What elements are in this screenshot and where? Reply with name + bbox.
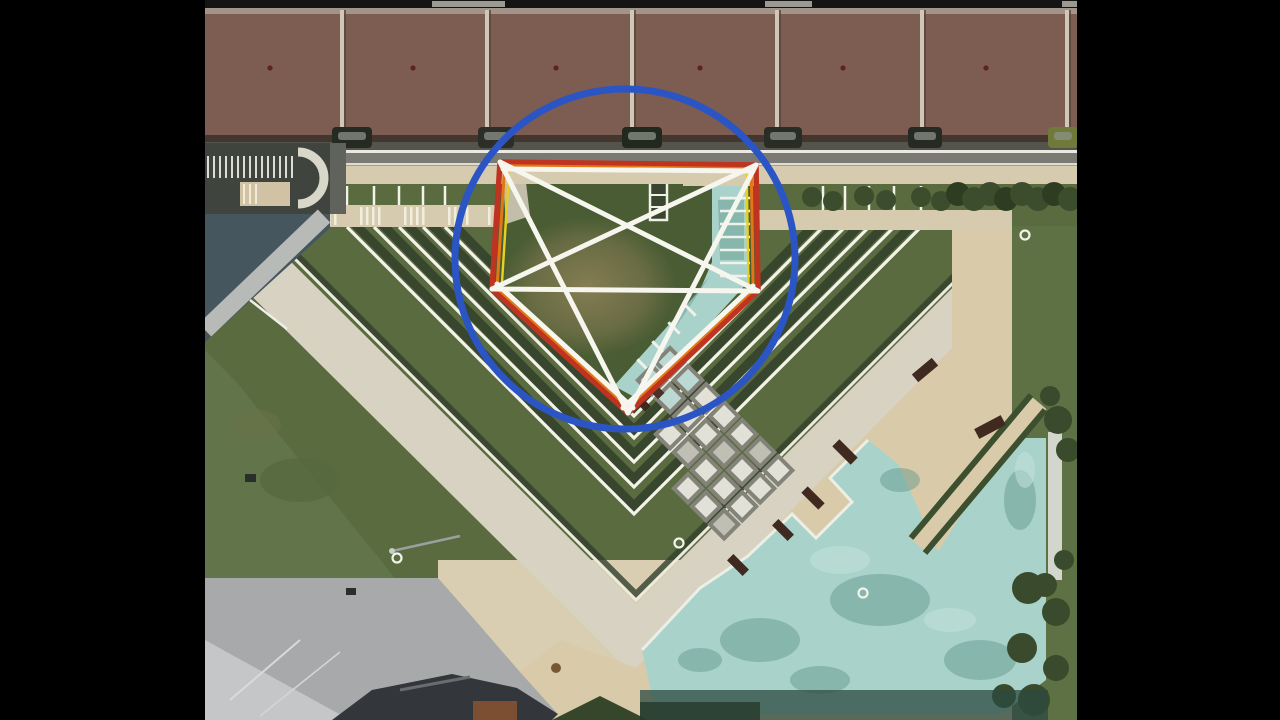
crosswalk-stripe	[416, 207, 419, 225]
car-roof	[1054, 132, 1072, 140]
light-pole-base	[389, 548, 395, 554]
crosswalk-stripe	[366, 207, 369, 225]
roof-divider-shadow	[489, 10, 491, 138]
hedge-clump	[854, 186, 874, 206]
water-texture	[924, 608, 976, 632]
water-texture	[720, 618, 800, 662]
water-texture	[678, 648, 722, 672]
roof-divider	[1065, 10, 1069, 138]
bin	[346, 588, 356, 595]
top-strip	[205, 0, 1077, 8]
water-texture	[944, 640, 1016, 680]
water-texture	[1015, 452, 1035, 488]
roof-divider-shadow	[924, 10, 926, 138]
lawn-mottle	[260, 458, 340, 502]
stair-treads	[208, 156, 292, 178]
tree	[1042, 598, 1070, 626]
tree	[1054, 550, 1074, 570]
letterbox-right	[1077, 0, 1280, 720]
top-strip-segment	[765, 1, 812, 7]
hedge-clump	[802, 187, 822, 207]
crosswalk-stripe	[422, 207, 425, 225]
roof-divider	[630, 10, 634, 138]
rooftop-edge-highlight	[205, 8, 1077, 14]
stair-entrance	[205, 143, 346, 214]
water-texture	[880, 468, 920, 492]
roof-divider	[485, 10, 489, 138]
car-roof	[914, 132, 936, 140]
tree	[1044, 406, 1072, 434]
lawn-mottle	[229, 409, 281, 441]
roof-vent	[840, 65, 845, 70]
crosswalk-stripe	[372, 207, 375, 225]
rooftop-band	[205, 8, 1077, 140]
roof-vent	[553, 65, 558, 70]
satellite-photo	[0, 0, 1280, 720]
tree	[1033, 573, 1057, 597]
car-roof	[338, 132, 366, 140]
tree	[1043, 655, 1069, 681]
wall-strip	[330, 143, 346, 214]
roof-vent	[267, 65, 272, 70]
roof-divider	[775, 10, 779, 138]
manhole	[551, 663, 561, 673]
bin	[245, 474, 256, 482]
water-texture	[790, 666, 850, 694]
crosswalk-stripe	[488, 207, 491, 225]
pentagram-line	[492, 289, 758, 291]
crosswalk-stripe	[410, 207, 413, 225]
crosswalk-stripe	[448, 207, 451, 225]
crosswalk-stripe	[466, 207, 469, 225]
roof-vent	[410, 65, 415, 70]
pentagram-line	[503, 169, 753, 171]
car-roof	[770, 132, 796, 140]
tree	[1007, 633, 1037, 663]
hedge-clump	[911, 187, 931, 207]
water-texture	[810, 546, 870, 574]
roof-vent	[697, 65, 702, 70]
hedge-clump	[823, 191, 843, 211]
pool-shadow-band	[640, 702, 760, 720]
roof-divider	[340, 10, 344, 138]
letterbox-left	[0, 0, 205, 720]
hedge-clump	[876, 190, 896, 210]
roof-divider-shadow	[344, 10, 346, 138]
tree	[1056, 438, 1080, 462]
roof-divider	[920, 10, 924, 138]
tree	[1040, 386, 1060, 406]
crosswalk-stripe	[404, 207, 407, 225]
video-frame	[0, 0, 1280, 720]
water-texture	[830, 574, 930, 626]
roof-vent	[983, 65, 988, 70]
crosswalk-stripe	[360, 207, 363, 225]
top-strip-segment	[432, 1, 505, 7]
top-strip-segment	[1062, 1, 1077, 7]
rust-roof-patch	[473, 701, 517, 720]
roof-divider-shadow	[634, 10, 636, 138]
roof-divider-shadow	[1069, 10, 1071, 138]
car-roof	[628, 132, 656, 140]
crosswalk-stripe	[378, 207, 381, 225]
roof-divider-shadow	[779, 10, 781, 138]
